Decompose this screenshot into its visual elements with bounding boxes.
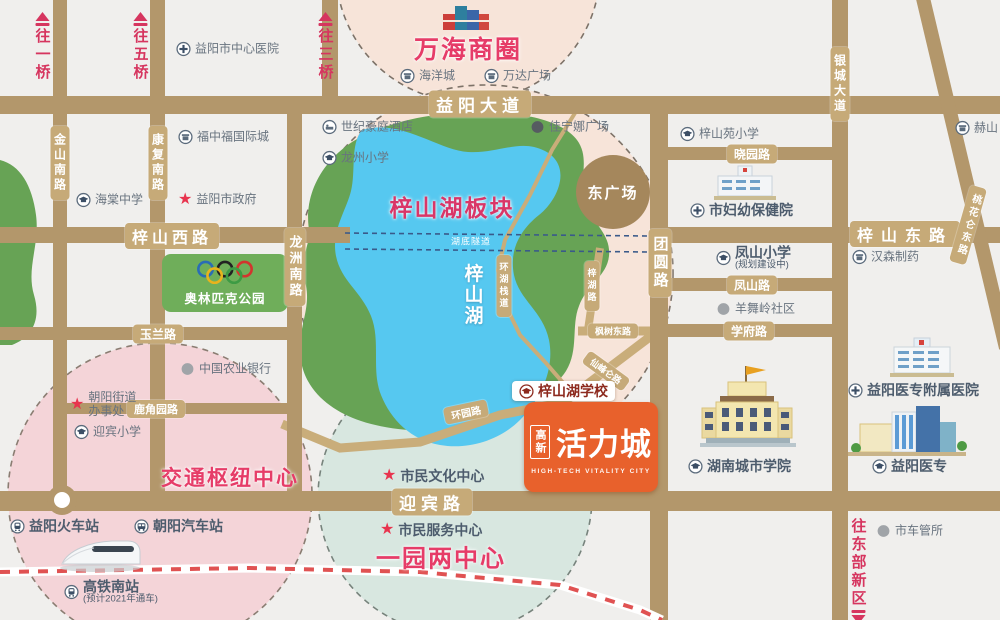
olympic-park-label: 奥林匹克公园 — [184, 288, 265, 307]
project-logo: 高新 活力城 HIGH-TECH VITALITY CITY — [524, 402, 658, 492]
location-map: 东广场 奥林匹克公园 益阳大道梓山西路梓山东路迎宾路晓园路凤山路学府路玉兰路鹿角… — [0, 0, 1000, 620]
city-college-building — [700, 366, 796, 447]
logo-side-text: 高新 — [530, 425, 550, 459]
park-west-blob — [0, 160, 37, 345]
east-plaza-circle: 东广场 — [576, 155, 650, 229]
medical-college-buildings — [848, 406, 967, 456]
logo-subtitle: HIGH-TECH VITALITY CITY — [531, 468, 651, 475]
affiliated-hospital-building — [890, 338, 954, 377]
logo-title: 活力城 — [556, 419, 652, 464]
roundabout — [47, 485, 77, 515]
olympic-park: 奥林匹克公园 — [162, 254, 288, 312]
maternity-hospital-building — [714, 166, 776, 200]
map-base-art — [0, 0, 1000, 620]
olympic-rings-icon — [192, 260, 258, 286]
east-plaza-label: 东广场 — [587, 182, 638, 203]
